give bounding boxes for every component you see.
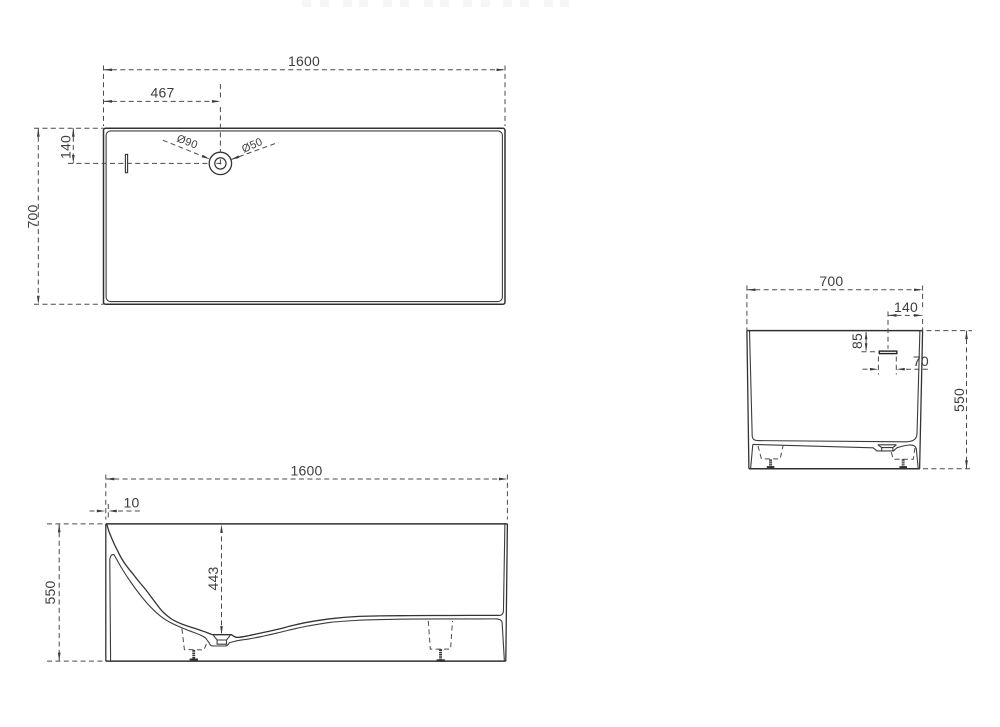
svg-text:70: 70 xyxy=(913,353,929,369)
svg-text:700: 700 xyxy=(819,273,843,289)
svg-text:550: 550 xyxy=(951,388,967,412)
svg-text:550: 550 xyxy=(42,581,58,605)
svg-text:467: 467 xyxy=(151,85,175,101)
svg-text:1600: 1600 xyxy=(291,462,323,478)
svg-text:443: 443 xyxy=(205,567,221,591)
svg-text:1600: 1600 xyxy=(288,53,320,69)
svg-text:700: 700 xyxy=(25,205,41,229)
svg-text:85: 85 xyxy=(849,333,865,349)
svg-text:140: 140 xyxy=(894,299,918,315)
svg-text:140: 140 xyxy=(58,135,74,159)
svg-text:10: 10 xyxy=(124,495,140,511)
